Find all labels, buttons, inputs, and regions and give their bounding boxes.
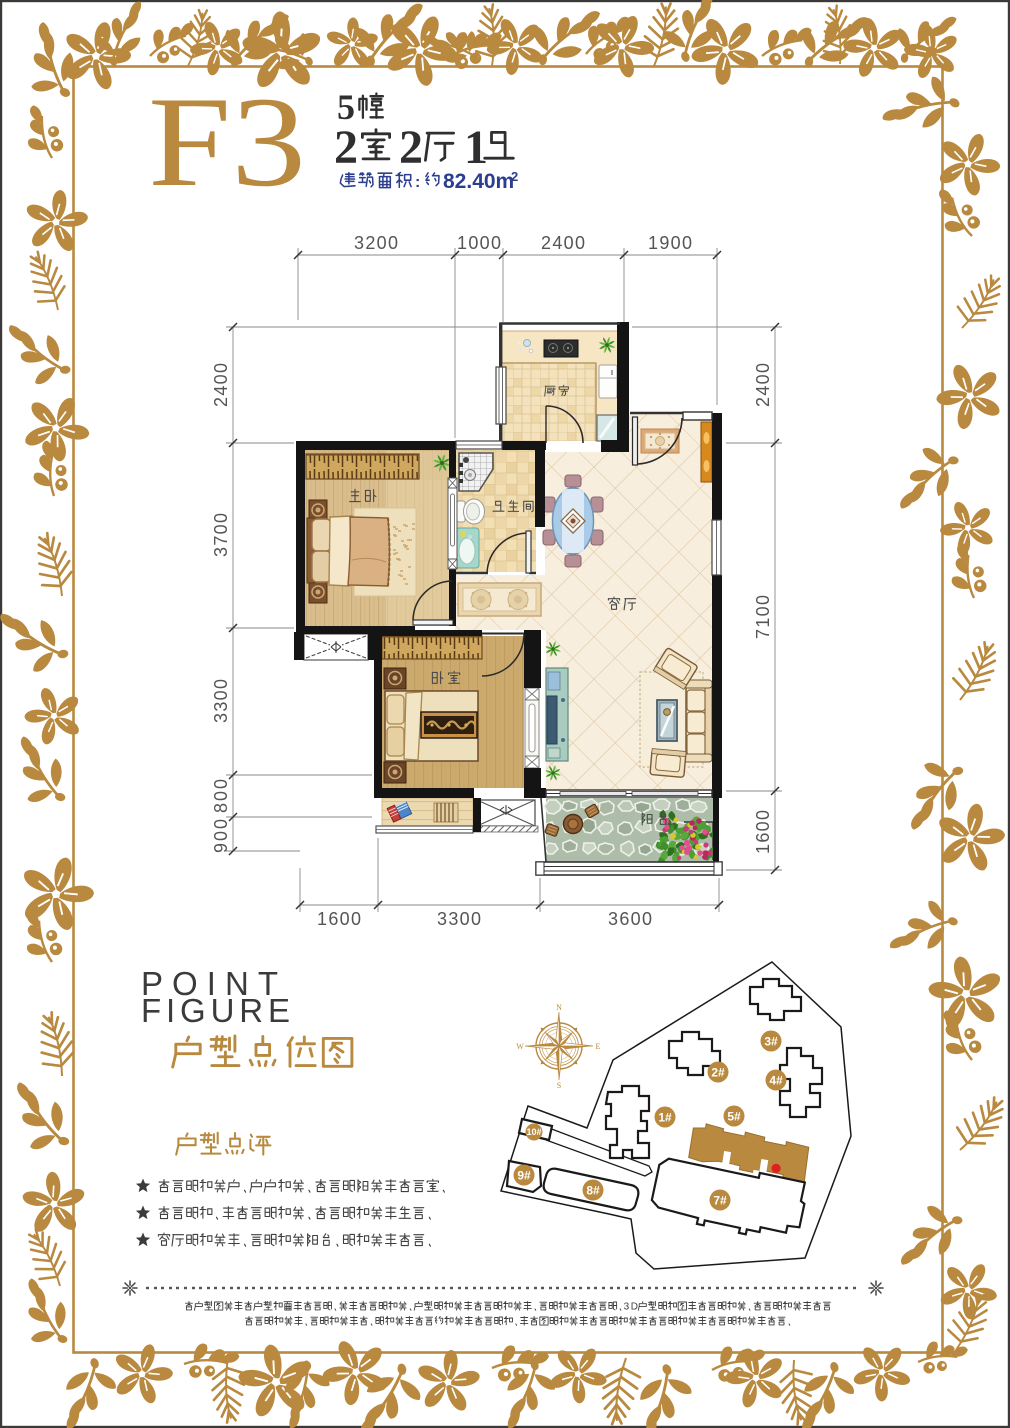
svg-text:2: 2 xyxy=(511,169,518,184)
svg-text:10#: 10# xyxy=(526,1127,541,1137)
svg-text:900: 900 xyxy=(211,819,231,853)
svg-text::: : xyxy=(415,174,420,191)
svg-text:2: 2 xyxy=(334,121,358,174)
svg-text:1600: 1600 xyxy=(753,810,773,854)
svg-text:1000: 1000 xyxy=(457,233,501,253)
svg-text:3: 3 xyxy=(624,1302,630,1313)
svg-text:2400: 2400 xyxy=(211,363,231,407)
svg-text:2400: 2400 xyxy=(753,363,773,407)
svg-text:E: E xyxy=(596,1042,601,1051)
svg-text:1600: 1600 xyxy=(317,909,361,929)
svg-text:1#: 1# xyxy=(658,1110,672,1124)
svg-text:9#: 9# xyxy=(517,1168,531,1182)
svg-text:2: 2 xyxy=(399,121,423,174)
svg-text:1900: 1900 xyxy=(648,233,692,253)
svg-text:S: S xyxy=(557,1081,561,1090)
svg-text:7100: 7100 xyxy=(753,595,773,639)
svg-text:3600: 3600 xyxy=(608,909,652,929)
svg-text:FIGURE: FIGURE xyxy=(141,992,290,1029)
svg-text:3200: 3200 xyxy=(354,233,398,253)
svg-text:F3: F3 xyxy=(148,70,306,213)
svg-text:7#: 7# xyxy=(713,1193,727,1207)
svg-text:W: W xyxy=(516,1042,524,1051)
svg-text:2400: 2400 xyxy=(541,233,585,253)
svg-text:N: N xyxy=(556,1003,562,1012)
svg-text:4#: 4# xyxy=(769,1073,783,1087)
svg-text:3#: 3# xyxy=(764,1034,778,1048)
svg-text:3300: 3300 xyxy=(437,909,481,929)
svg-text:8#: 8# xyxy=(586,1183,600,1197)
svg-text:82.40m: 82.40m xyxy=(443,170,514,193)
svg-text:1: 1 xyxy=(464,121,488,174)
svg-text:2#: 2# xyxy=(711,1065,725,1079)
svg-text:3300: 3300 xyxy=(211,679,231,723)
svg-text:5#: 5# xyxy=(727,1109,741,1123)
svg-text:3700: 3700 xyxy=(211,513,231,557)
svg-text:D: D xyxy=(631,1302,638,1313)
svg-text:800: 800 xyxy=(211,779,231,813)
